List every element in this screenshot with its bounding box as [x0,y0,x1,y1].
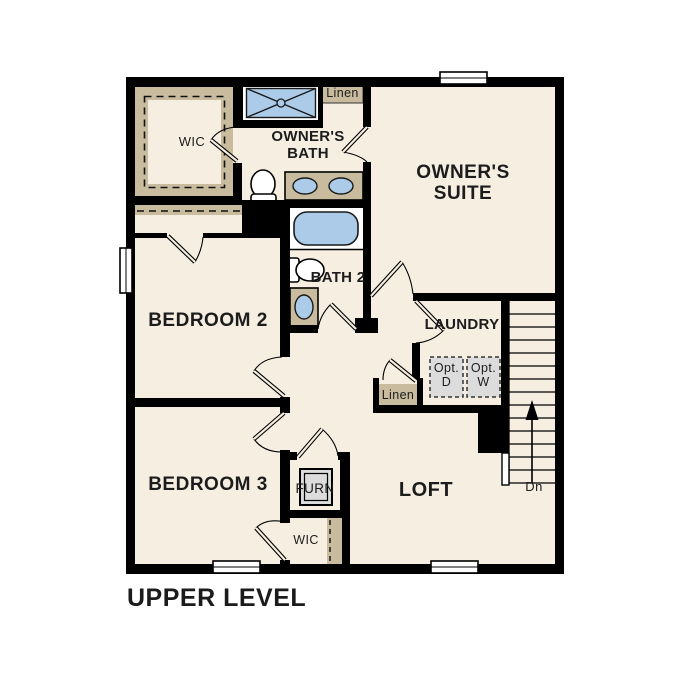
room-label-bedroom-2: BEDROOM 2 [133,310,283,331]
bathtub-icon [290,208,363,250]
room-label-laundry: LAUNDRY [412,317,512,334]
room-label-owners-bath: OWNER'S BATH [262,129,354,163]
window-bedroom3 [213,561,260,573]
label-furnace: FURN [285,481,345,496]
label-opt-washer: Opt. W [467,361,500,390]
double-vanity-sinks-icon [285,172,363,200]
shower-icon [242,84,320,122]
label-stairs-down: Dn [514,480,554,495]
stair-railing [502,453,509,485]
room-label-bath-2: BATH 2 [308,270,368,287]
room-label-owners-suite: OWNER'S SUITE [403,162,523,205]
window-owners-suite [440,72,487,84]
label-linen-mid: Linen [371,388,425,402]
window-loft [431,561,478,573]
window-bedroom2 [120,248,132,293]
bath2-sink-icon [290,288,318,326]
room-label-loft: LOFT [386,479,466,501]
plan-title: UPPER LEVEL [127,584,377,612]
room-label-wic-bottom: WIC [281,533,331,547]
label-opt-dryer: Opt. D [430,361,463,390]
label-linen-top: Linen [317,86,368,100]
floor-plan: WIC OWNER'S BATH Linen OWNER'S SUITE BED… [0,0,687,687]
room-label-bedroom-3: BEDROOM 3 [133,474,283,495]
room-label-wic-top: WIC [162,135,222,150]
bedroom2-closet-shelving [135,205,242,215]
